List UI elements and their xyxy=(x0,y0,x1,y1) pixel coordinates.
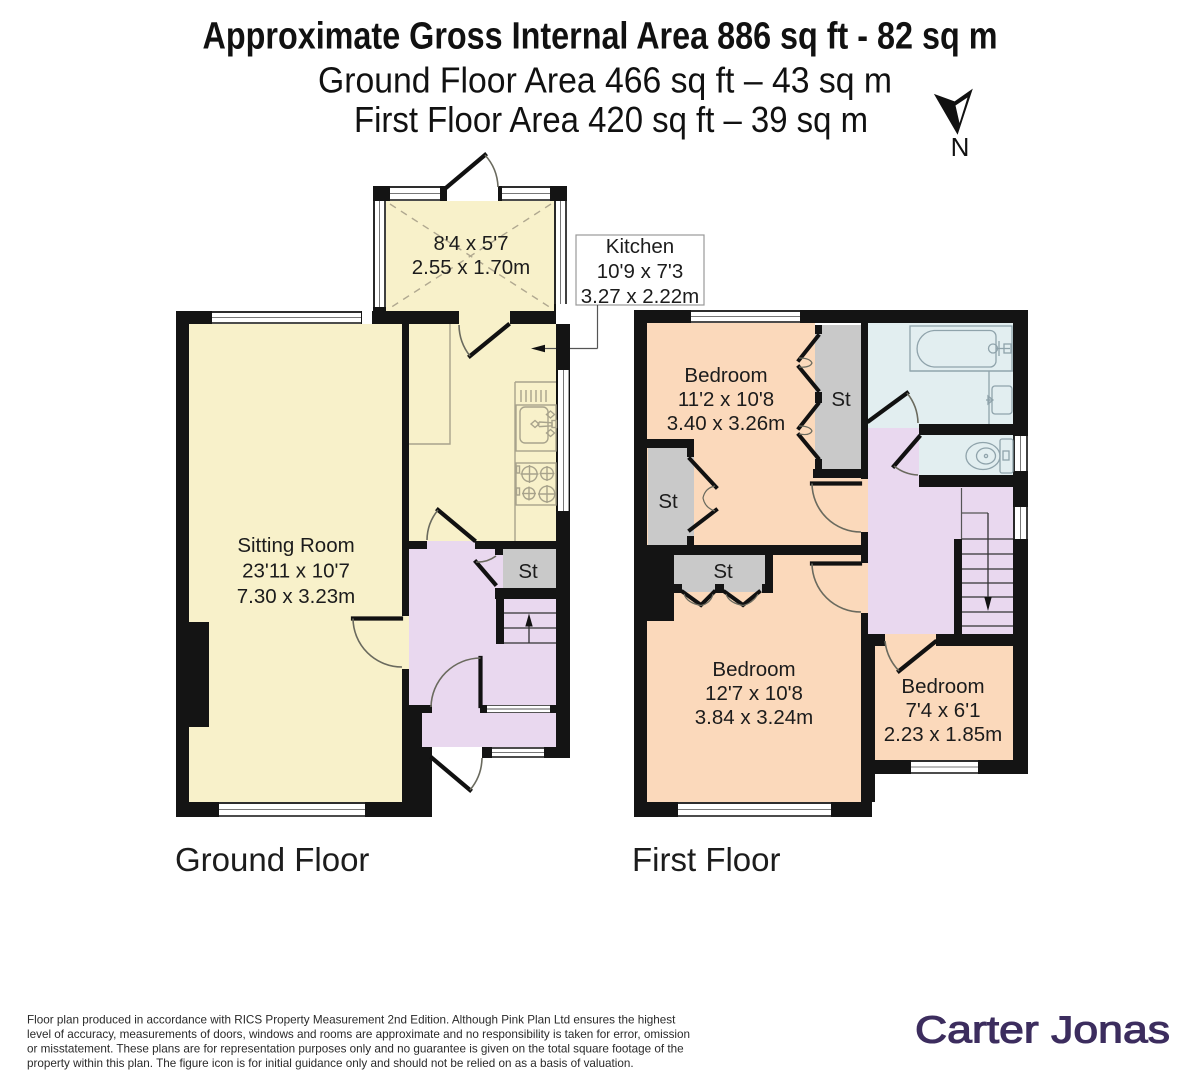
svg-text:N: N xyxy=(951,132,970,162)
svg-text:First Floor: First Floor xyxy=(632,841,781,878)
svg-text:3.27 x 2.22m: 3.27 x 2.22m xyxy=(581,285,700,308)
svg-text:12'7 x 10'8: 12'7 x 10'8 xyxy=(705,682,803,705)
svg-text:level of accuracy, measurement: level of accuracy, measurements of doors… xyxy=(27,1028,690,1041)
svg-text:or misstatement. These plans a: or misstatement. These plans are for rep… xyxy=(27,1043,684,1056)
svg-text:Bedroom: Bedroom xyxy=(901,675,984,698)
svg-text:Carter Jonas: Carter Jonas xyxy=(915,1010,1170,1052)
svg-text:7'4 x 6'1: 7'4 x 6'1 xyxy=(905,699,980,722)
svg-text:3.40 x 3.26m: 3.40 x 3.26m xyxy=(667,412,786,435)
svg-text:Bedroom: Bedroom xyxy=(684,364,767,387)
svg-text:property within this plan. The: property within this plan. The figure ic… xyxy=(27,1057,634,1070)
svg-text:8'4 x 5'7: 8'4 x 5'7 xyxy=(433,232,508,255)
svg-text:7.30 x 3.23m: 7.30 x 3.23m xyxy=(237,585,356,608)
svg-text:Approximate Gross Internal Are: Approximate Gross Internal Area 886 sq f… xyxy=(203,16,998,58)
svg-text:Floor plan produced in accorda: Floor plan produced in accordance with R… xyxy=(27,1014,676,1027)
svg-text:St: St xyxy=(713,560,733,583)
svg-text:11'2 x 10'8: 11'2 x 10'8 xyxy=(678,388,774,411)
svg-text:2.23 x 1.85m: 2.23 x 1.85m xyxy=(884,723,1003,746)
svg-text:23'11 x 10'7: 23'11 x 10'7 xyxy=(242,560,350,583)
svg-text:Ground Floor: Ground Floor xyxy=(175,841,369,878)
svg-text:Sitting Room: Sitting Room xyxy=(237,534,354,557)
svg-text:10'9 x 7'3: 10'9 x 7'3 xyxy=(597,260,683,283)
svg-text:Bedroom: Bedroom xyxy=(712,658,795,681)
svg-text:Kitchen: Kitchen xyxy=(606,235,674,258)
svg-text:3.84 x 3.24m: 3.84 x 3.24m xyxy=(695,706,814,729)
svg-text:St: St xyxy=(518,560,538,583)
svg-text:First Floor Area 420 sq ft – 3: First Floor Area 420 sq ft – 39 sq m xyxy=(354,99,868,140)
svg-text:St: St xyxy=(658,490,678,513)
svg-text:2.55 x 1.70m: 2.55 x 1.70m xyxy=(412,256,531,279)
svg-text:Ground Floor Area 466 sq ft –: Ground Floor Area 466 sq ft – 43 sq m xyxy=(318,59,892,100)
svg-text:St: St xyxy=(831,388,851,411)
